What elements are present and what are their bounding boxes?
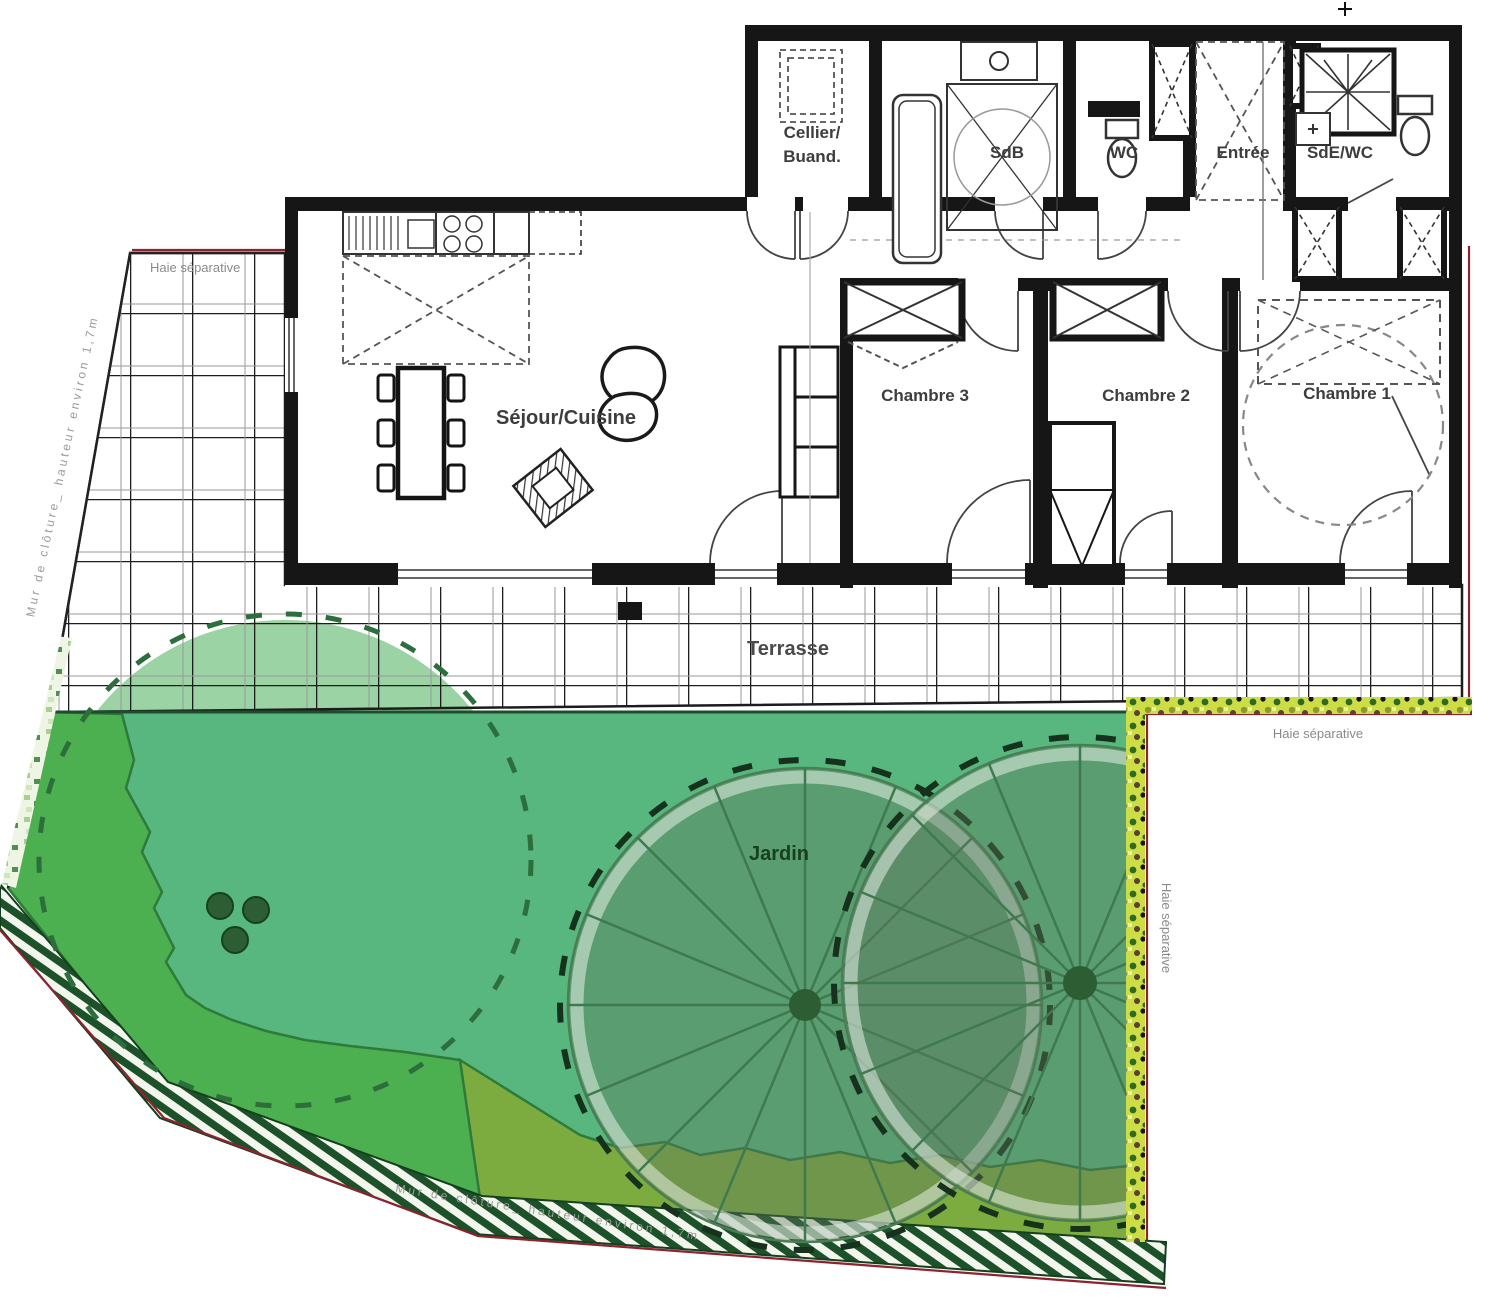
sofa [780, 347, 838, 497]
room-label-wc: WC [1110, 143, 1138, 162]
dining-table [378, 368, 464, 498]
room-label-cellier-line1: Cellier/ [784, 123, 841, 142]
room-label-chambre2: Chambre 2 [1102, 386, 1190, 405]
hedge-top-right [1126, 697, 1472, 714]
apartment-building [285, 25, 1462, 588]
room-label-entree: Entrée [1217, 143, 1270, 162]
room-label-sdb: SdB [990, 143, 1024, 162]
bathtub [893, 95, 941, 263]
room-label-sejour-cuisine: Séjour/Cuisine [496, 407, 636, 429]
room-label-cellier-line2: Buand. [783, 147, 841, 166]
room-label-chambre3: Chambre 3 [881, 386, 969, 405]
room-label-chambre1: Chambre 1 [1303, 384, 1391, 403]
floor-plan-drawing: Cellier/ Buand. SdB WC Entrée SdE/WC Séj… [0, 0, 1500, 1299]
terrace-post [618, 602, 642, 620]
jardin-label: Jardin [749, 843, 809, 865]
hedge-label-right-vertical: Haie séparative [1159, 883, 1174, 973]
sde-toilet [1398, 96, 1432, 155]
north-cross-icon [1338, 2, 1352, 16]
chambre2-closet [1050, 423, 1114, 566]
sde-basin [1296, 113, 1330, 145]
floor-plan-page: Cellier/ Buand. SdB WC Entrée SdE/WC Séj… [0, 0, 1500, 1299]
annotations [1338, 2, 1352, 16]
terrasse-label: Terrasse [747, 638, 829, 660]
hedge-label-right-horizontal: Haie séparative [1273, 726, 1363, 741]
room-label-sde-wc: SdE/WC [1307, 143, 1373, 162]
hedge-label-top-left: Haie séparative [150, 260, 240, 275]
hedge-right-vertical [1126, 697, 1145, 1242]
